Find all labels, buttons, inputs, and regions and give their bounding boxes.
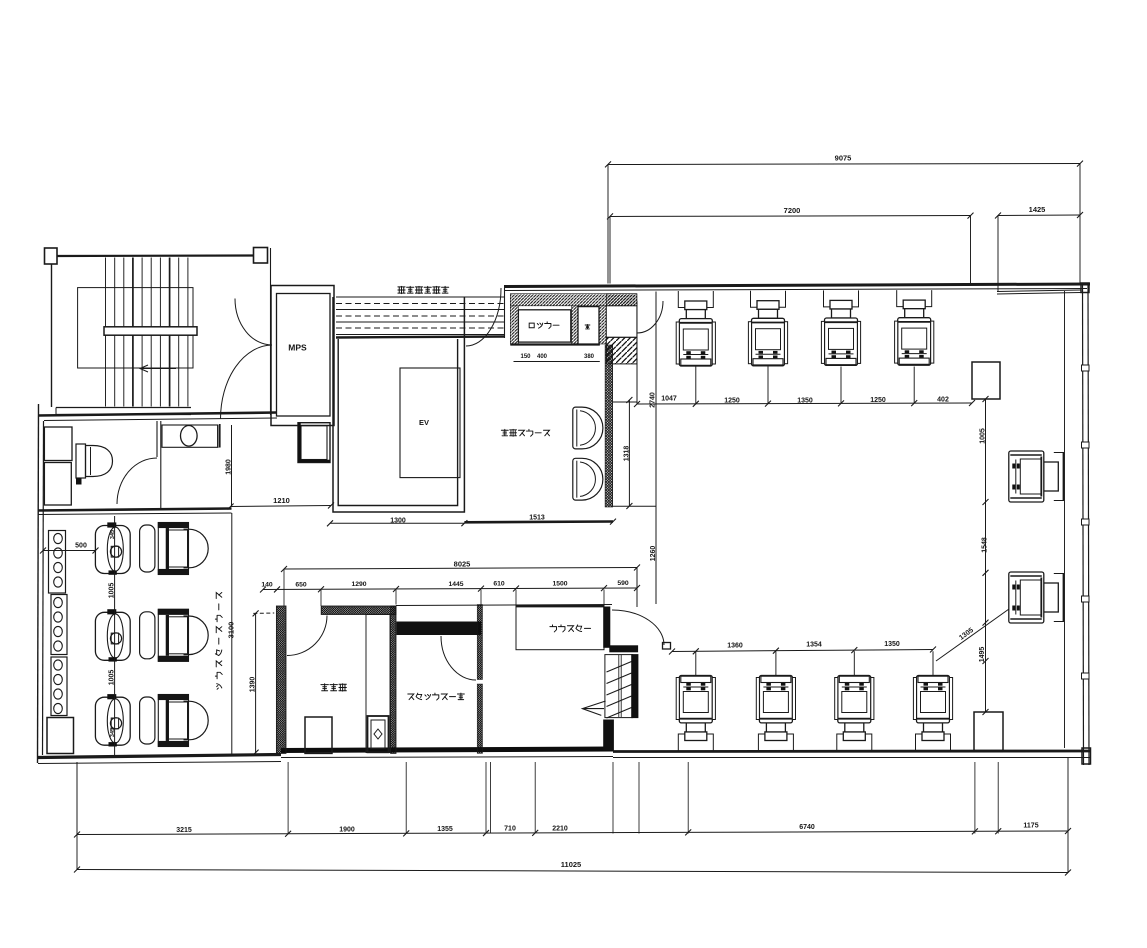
- svg-text:140: 140: [261, 581, 273, 588]
- svg-text:402: 402: [937, 397, 949, 404]
- svg-text:400: 400: [537, 354, 548, 360]
- svg-text:1425: 1425: [1029, 205, 1046, 214]
- svg-text:650: 650: [295, 581, 307, 588]
- svg-text:1548: 1548: [982, 537, 989, 553]
- svg-text:1318: 1318: [623, 446, 630, 462]
- svg-text:1210: 1210: [273, 496, 290, 505]
- svg-text:150: 150: [520, 354, 531, 360]
- svg-text:345: 345: [110, 728, 116, 737]
- svg-text:1500: 1500: [552, 580, 567, 587]
- svg-text:500: 500: [75, 543, 87, 550]
- svg-text:1900: 1900: [339, 827, 355, 834]
- svg-text:1260: 1260: [650, 546, 657, 562]
- svg-text:EV: EV: [419, 418, 429, 427]
- svg-text:2210: 2210: [552, 826, 568, 833]
- svg-text:1390: 1390: [250, 677, 257, 693]
- svg-text:9075: 9075: [835, 154, 852, 163]
- svg-text:1300: 1300: [390, 518, 406, 525]
- svg-text:1350: 1350: [797, 398, 813, 405]
- svg-text:1354: 1354: [806, 642, 822, 649]
- svg-text:1005: 1005: [109, 670, 116, 686]
- svg-text:1290: 1290: [351, 581, 366, 588]
- svg-text:1175: 1175: [1023, 823, 1038, 830]
- svg-text:610: 610: [493, 581, 505, 588]
- svg-text:MPS: MPS: [288, 343, 307, 353]
- svg-text:1005: 1005: [109, 583, 116, 599]
- svg-text:1355: 1355: [437, 826, 453, 833]
- svg-text:1495: 1495: [979, 647, 986, 663]
- svg-text:6740: 6740: [799, 824, 815, 831]
- svg-text:345: 345: [110, 530, 116, 539]
- svg-text:1350: 1350: [884, 641, 900, 648]
- svg-text:1005: 1005: [980, 428, 987, 444]
- svg-text:710: 710: [504, 826, 516, 833]
- svg-text:1360: 1360: [727, 643, 743, 650]
- svg-text:380: 380: [584, 354, 595, 360]
- svg-text:590: 590: [617, 580, 629, 587]
- svg-text:1250: 1250: [724, 398, 740, 405]
- svg-text:8025: 8025: [454, 560, 471, 569]
- svg-text:3215: 3215: [176, 827, 192, 834]
- svg-text:3100: 3100: [227, 622, 236, 639]
- svg-text:1513: 1513: [529, 515, 545, 522]
- svg-text:1445: 1445: [448, 581, 463, 588]
- svg-text:2740: 2740: [650, 392, 657, 408]
- svg-text:11025: 11025: [561, 860, 581, 869]
- svg-text:1047: 1047: [661, 396, 677, 403]
- svg-text:7200: 7200: [784, 206, 801, 215]
- svg-text:1980: 1980: [225, 459, 232, 475]
- svg-text:1250: 1250: [870, 397, 886, 404]
